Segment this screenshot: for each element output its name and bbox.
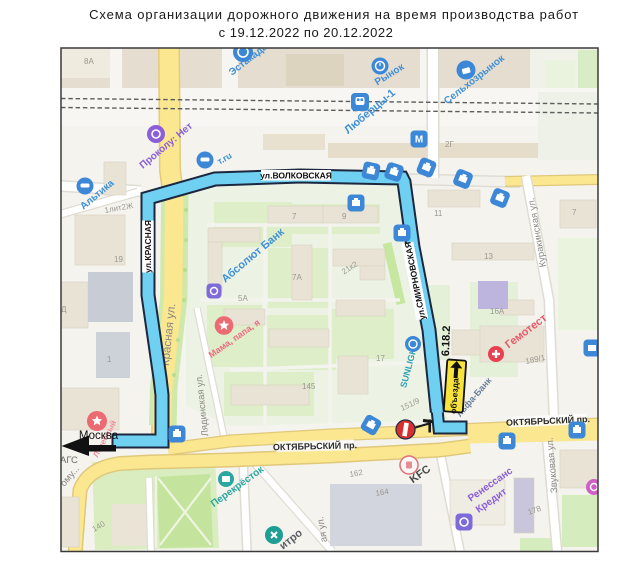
svg-text:2Г: 2Г xyxy=(445,140,454,149)
svg-text:7: 7 xyxy=(292,212,297,221)
svg-text:145: 145 xyxy=(302,382,316,391)
svg-text:Д: Д xyxy=(61,305,67,314)
svg-text:ул.ВОЛКОВСКАЯ: ул.ВОЛКОВСКАЯ xyxy=(260,171,332,181)
svg-text:17: 17 xyxy=(376,354,385,363)
svg-text:Схема организации дорожного дв: Схема организации дорожного движения на … xyxy=(89,7,579,22)
svg-text:9: 9 xyxy=(342,212,347,221)
svg-text:1: 1 xyxy=(107,355,112,364)
svg-text:ОКТЯБРЬСКИЙ пр.: ОКТЯБРЬСКИЙ пр. xyxy=(273,439,357,452)
svg-text:М: М xyxy=(415,135,423,146)
svg-text:с 19.12.2022 по 20.12.2022: с 19.12.2022 по 20.12.2022 xyxy=(219,25,394,40)
svg-text:11: 11 xyxy=(434,209,443,218)
svg-text:8А: 8А xyxy=(84,57,94,66)
svg-text:7: 7 xyxy=(572,208,577,217)
svg-text:5А: 5А xyxy=(238,294,248,303)
svg-text:13: 13 xyxy=(484,252,493,261)
svg-text:19: 19 xyxy=(114,255,123,264)
svg-text:6.18.2: 6.18.2 xyxy=(440,325,453,356)
svg-text:АГС: АГС xyxy=(60,455,78,466)
svg-text:7А: 7А xyxy=(292,273,302,282)
svg-text:16А: 16А xyxy=(490,307,505,316)
svg-text:ул.КРАСНАЯ: ул.КРАСНАЯ xyxy=(143,220,153,273)
svg-text:Москва: Москва xyxy=(79,430,119,442)
